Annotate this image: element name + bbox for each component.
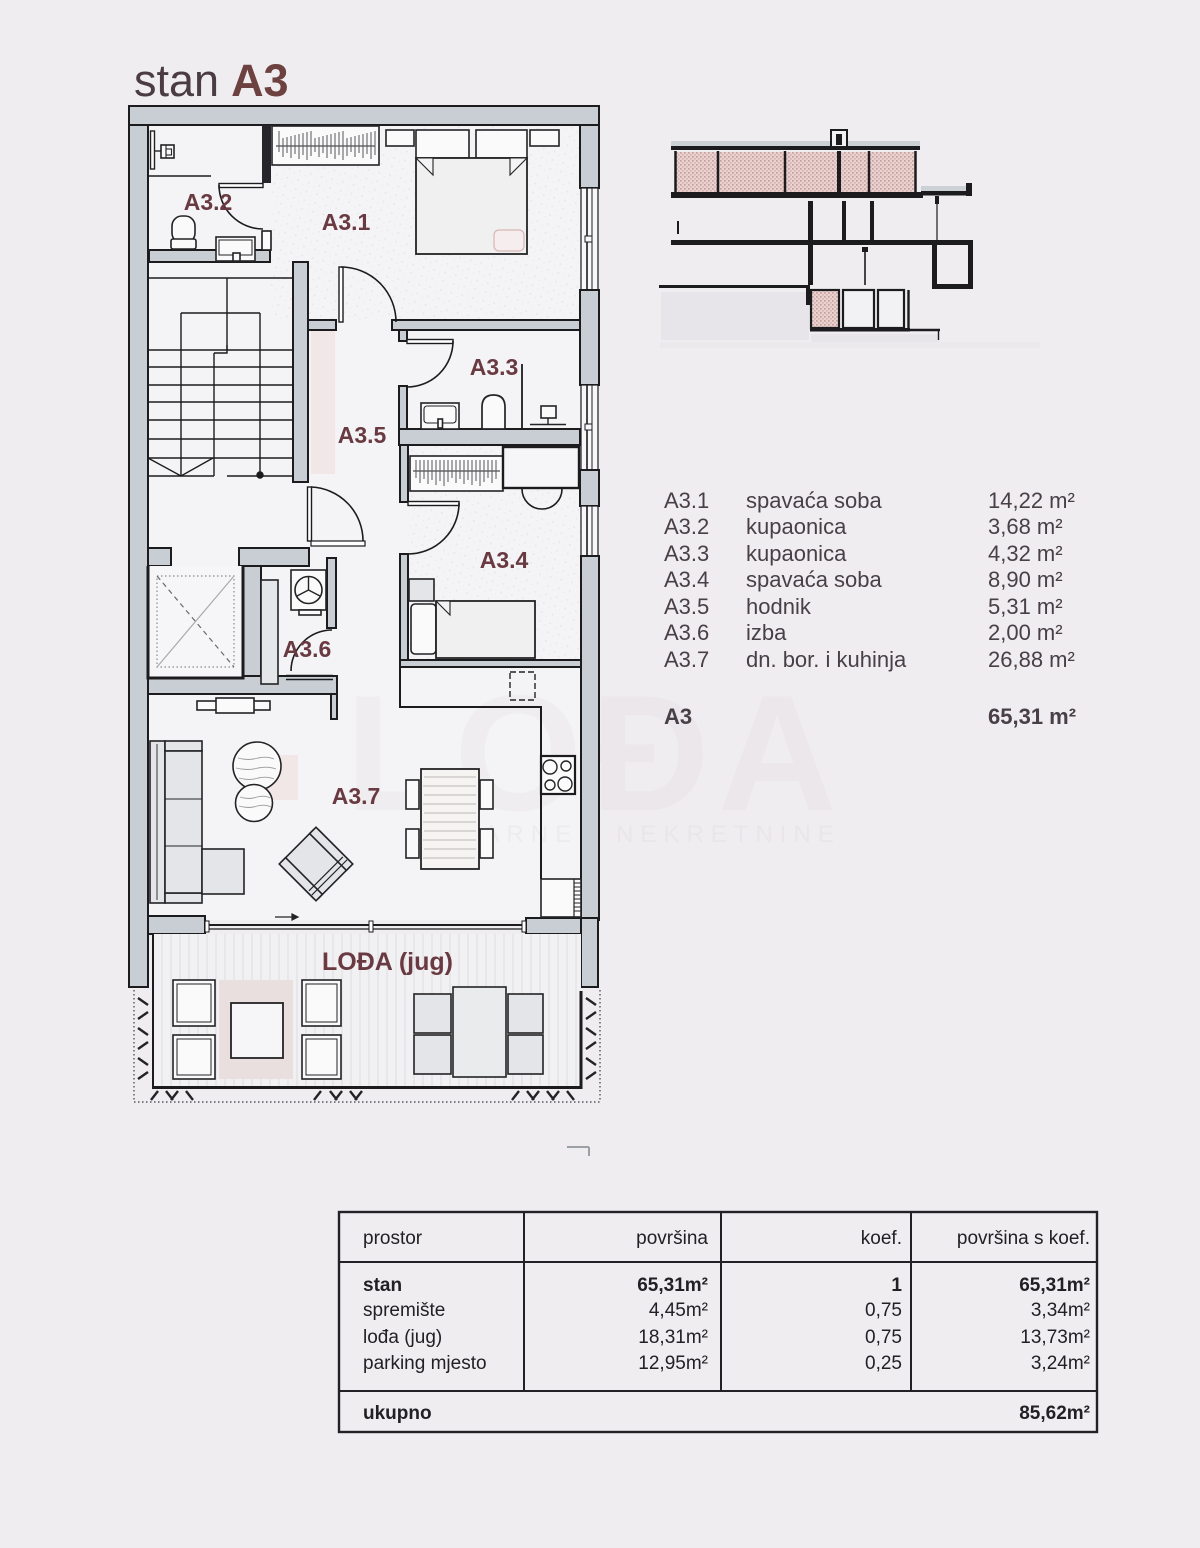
svg-text:85,62m²: 85,62m² — [1019, 1403, 1090, 1424]
svg-text:A3.4: A3.4 — [480, 547, 529, 573]
svg-text:3,24m²: 3,24m² — [1031, 1353, 1090, 1374]
svg-text:izba: izba — [746, 620, 787, 645]
svg-text:3,34m²: 3,34m² — [1031, 1300, 1090, 1321]
svg-text:65,31m²: 65,31m² — [1019, 1275, 1090, 1296]
svg-text:A3.4: A3.4 — [664, 567, 709, 592]
svg-text:A3.3: A3.3 — [664, 541, 709, 566]
svg-text:A3.3: A3.3 — [470, 354, 519, 380]
svg-text:14,22 m²: 14,22 m² — [988, 488, 1075, 513]
svg-text:spavaća soba: spavaća soba — [746, 488, 883, 513]
svg-text:prostor: prostor — [363, 1228, 423, 1249]
svg-text:A3.7: A3.7 — [332, 783, 381, 809]
svg-text:A3: A3 — [664, 704, 692, 729]
svg-text:kupaonica: kupaonica — [746, 541, 847, 566]
svg-text:površina: površina — [636, 1228, 708, 1249]
svg-text:A3.5: A3.5 — [664, 594, 709, 619]
svg-text:spavaća soba: spavaća soba — [746, 567, 883, 592]
svg-text:65,31m²: 65,31m² — [637, 1275, 708, 1296]
svg-text:1: 1 — [891, 1275, 902, 1296]
svg-text:A3.2: A3.2 — [184, 189, 233, 215]
svg-text:A3.1: A3.1 — [664, 488, 709, 513]
svg-text:dn. bor. i kuhinja: dn. bor. i kuhinja — [746, 647, 907, 672]
svg-text:8,90 m²: 8,90 m² — [988, 567, 1063, 592]
svg-text:A3.7: A3.7 — [664, 647, 709, 672]
svg-text:koef.: koef. — [861, 1228, 902, 1249]
svg-text:13,73m²: 13,73m² — [1020, 1327, 1090, 1348]
svg-text:lođa (jug): lođa (jug) — [363, 1327, 442, 1348]
svg-text:A3.5: A3.5 — [338, 422, 387, 448]
svg-text:A3.2: A3.2 — [664, 514, 709, 539]
svg-text:površina s koef.: površina s koef. — [957, 1228, 1090, 1249]
svg-text:4,32 m²: 4,32 m² — [988, 541, 1063, 566]
svg-text:26,88 m²: 26,88 m² — [988, 647, 1075, 672]
svg-text:ukupno: ukupno — [363, 1403, 432, 1424]
svg-text:parking mjesto: parking mjesto — [363, 1353, 487, 1374]
svg-text:3,68 m²: 3,68 m² — [988, 514, 1063, 539]
svg-text:stanA3: stanA3 — [134, 55, 289, 106]
svg-text:A3.1: A3.1 — [322, 209, 371, 235]
svg-text:spremište: spremište — [363, 1300, 445, 1321]
svg-text:LOĐA (jug): LOĐA (jug) — [322, 948, 453, 976]
svg-text:A3.6: A3.6 — [664, 620, 709, 645]
svg-text:4,45m²: 4,45m² — [649, 1300, 708, 1321]
svg-text:kupaonica: kupaonica — [746, 514, 847, 539]
svg-text:A3.6: A3.6 — [283, 636, 332, 662]
svg-text:2,00 m²: 2,00 m² — [988, 620, 1063, 645]
svg-text:0,25: 0,25 — [865, 1353, 902, 1374]
svg-text:0,75: 0,75 — [865, 1300, 902, 1321]
svg-text:stan: stan — [363, 1275, 402, 1296]
svg-text:hodnik: hodnik — [746, 594, 812, 619]
svg-text:0,75: 0,75 — [865, 1327, 902, 1348]
svg-text:12,95m²: 12,95m² — [638, 1353, 708, 1374]
svg-text:18,31m²: 18,31m² — [638, 1327, 708, 1348]
svg-text:KVARNER NEKRETNINE: KVARNER NEKRETNINE — [439, 821, 841, 848]
svg-text:5,31 m²: 5,31 m² — [988, 594, 1063, 619]
svg-text:65,31 m²: 65,31 m² — [988, 704, 1076, 729]
